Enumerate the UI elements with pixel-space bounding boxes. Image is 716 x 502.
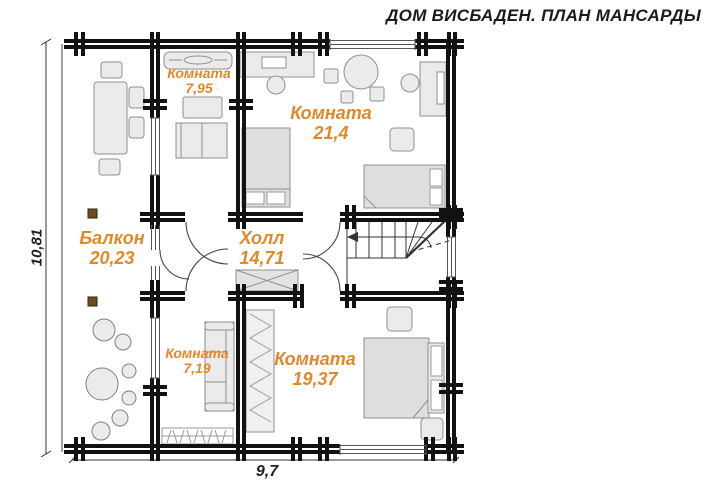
floor-plan-page: ДОМ ВИСБАДЕН. ПЛАН МАНСАРДЫ <box>0 0 716 502</box>
staircase <box>347 220 452 291</box>
stair-path-dashed <box>410 240 452 252</box>
room-name: Комната <box>165 346 228 361</box>
room-name: Балкон <box>79 229 144 249</box>
room-label-balcony: Балкон 20,23 <box>60 229 164 269</box>
room-name: Комната <box>167 66 230 81</box>
room-area: 14,71 <box>239 249 284 269</box>
room-label-hall: Холл 14,71 <box>210 229 314 269</box>
room-name: Комната <box>274 350 356 370</box>
room-name: Комната <box>290 104 372 124</box>
room-name: Холл <box>240 229 285 249</box>
dimension-width: 9,7 <box>239 463 295 481</box>
wood-block <box>88 209 97 218</box>
room-label-1937: Комната 19,37 <box>253 350 377 390</box>
dimension-height: 10,81 <box>29 213 46 283</box>
room-label-795: Комната 7,95 <box>156 66 242 97</box>
room-area: 7,95 <box>185 81 212 96</box>
door-balcony <box>160 250 189 279</box>
room-label-719: Комната 7,19 <box>152 346 242 377</box>
stair-direction-arrow <box>347 232 358 242</box>
room-label-214: Комната 21,4 <box>266 104 396 144</box>
rug <box>162 428 233 444</box>
room-719-furniture <box>162 322 234 444</box>
room-area: 19,37 <box>292 370 337 390</box>
room-area: 21,4 <box>313 124 348 144</box>
room-area: 20,23 <box>89 249 134 269</box>
balcony-planters <box>86 319 136 440</box>
room-area: 7,19 <box>183 361 210 376</box>
wood-block <box>88 297 97 306</box>
